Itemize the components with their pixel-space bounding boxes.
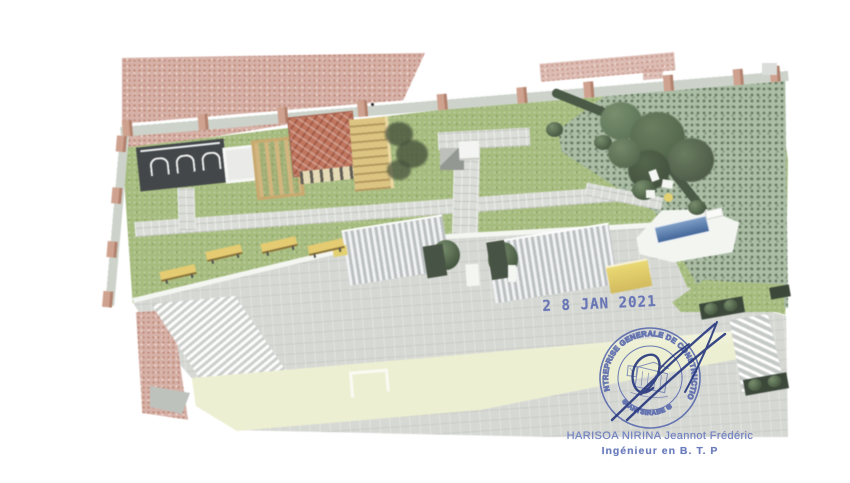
- paved-path-carport: [177, 188, 195, 231]
- engineer-title: Ingénieur en B. T. P: [545, 445, 775, 457]
- wall-pillar: [111, 187, 122, 204]
- wall-pillar: [583, 81, 594, 98]
- wall-pillar: [197, 114, 208, 131]
- scan-artifact-dot: [371, 103, 374, 106]
- wall-pillar: [122, 120, 133, 137]
- wall-pillar: [106, 241, 117, 258]
- parasol: [664, 193, 673, 202]
- scanned-document-page: 2 8 JAN 2021 ENTREPRISE GENERALE DE CONS…: [0, 0, 850, 483]
- outside-structure: [762, 63, 777, 75]
- signature: [567, 308, 752, 438]
- pool-chair: [646, 190, 655, 198]
- wall-pillar: [437, 94, 448, 111]
- wall-pillar: [116, 135, 127, 152]
- pool-bush: [688, 200, 706, 215]
- wall-pillar: [733, 69, 744, 86]
- engineer-name: HARISOA NIRINA Jeannot Frédéric: [545, 430, 775, 442]
- pool-chair: [661, 179, 673, 189]
- perimeter-wall-left: [103, 136, 129, 306]
- shrub-planter: [546, 122, 563, 137]
- white-cube: [459, 140, 480, 160]
- carport-arch: [175, 154, 196, 174]
- white-panel: [465, 264, 480, 287]
- wall-pillar: [102, 291, 113, 308]
- white-panel: [508, 265, 516, 282]
- goal-post: [349, 366, 393, 400]
- wall-pillar: [357, 100, 368, 117]
- carport-arch: [149, 156, 170, 176]
- carport-shelter: [136, 139, 228, 192]
- wall-pillar: [663, 75, 674, 92]
- wall-pillar: [516, 87, 527, 104]
- carport-arch: [201, 151, 222, 171]
